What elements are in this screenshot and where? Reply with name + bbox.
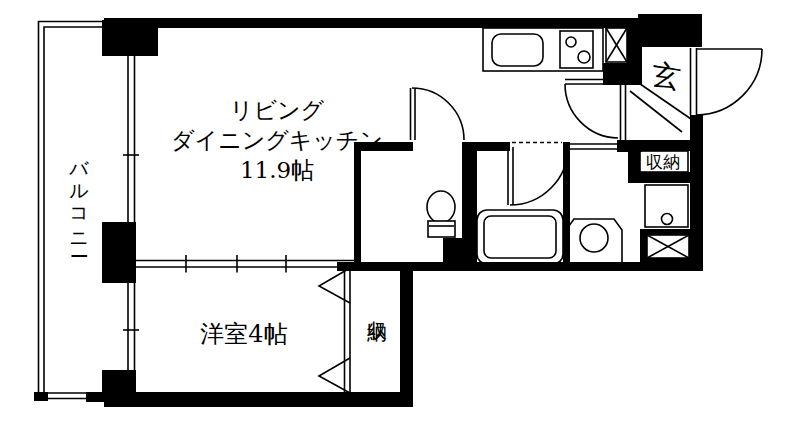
balcony-label: バルコニー: [67, 147, 93, 248]
ldk-label-line2: ダイニングキッチン: [171, 125, 383, 155]
two-burner-stove-icon: [560, 31, 593, 68]
bathroom-door: [508, 143, 568, 206]
ldk-label-line3: 11.9帖: [171, 155, 383, 185]
ldk-label-line1: リビング: [171, 95, 383, 125]
washroom-door: [565, 80, 626, 150]
sliding-partition: [136, 255, 354, 273]
kitchen-counter: [483, 28, 603, 71]
toilet-icon: [427, 191, 455, 237]
window-ldk: [123, 56, 139, 222]
pipe-shaft-x-icon: [647, 235, 689, 258]
washbasin-icon: [645, 185, 688, 227]
floor-plan: リビング ダイニングキッチン 11.9帖 洋室4帖 バルコニー 玄 収納 収納: [0, 0, 800, 422]
front-door: [691, 48, 763, 115]
bedroom-storage-label: 収納: [365, 305, 392, 309]
bathtub-icon: [477, 210, 563, 264]
kitchen-sink-icon: [492, 34, 543, 66]
pipe-shaft-x-icon: [606, 28, 627, 62]
entrance-storage-label: 収納: [646, 151, 680, 174]
toilet-door: [411, 88, 465, 140]
entrance-label: 玄: [649, 55, 684, 99]
washing-machine-pan-icon: [566, 219, 622, 263]
bedroom-closet-bifold-doors: [319, 268, 350, 393]
window-bedroom: [123, 283, 139, 371]
bedroom-label: 洋室4帖: [200, 318, 287, 350]
ldk-label: リビング ダイニングキッチン 11.9帖: [171, 95, 383, 185]
